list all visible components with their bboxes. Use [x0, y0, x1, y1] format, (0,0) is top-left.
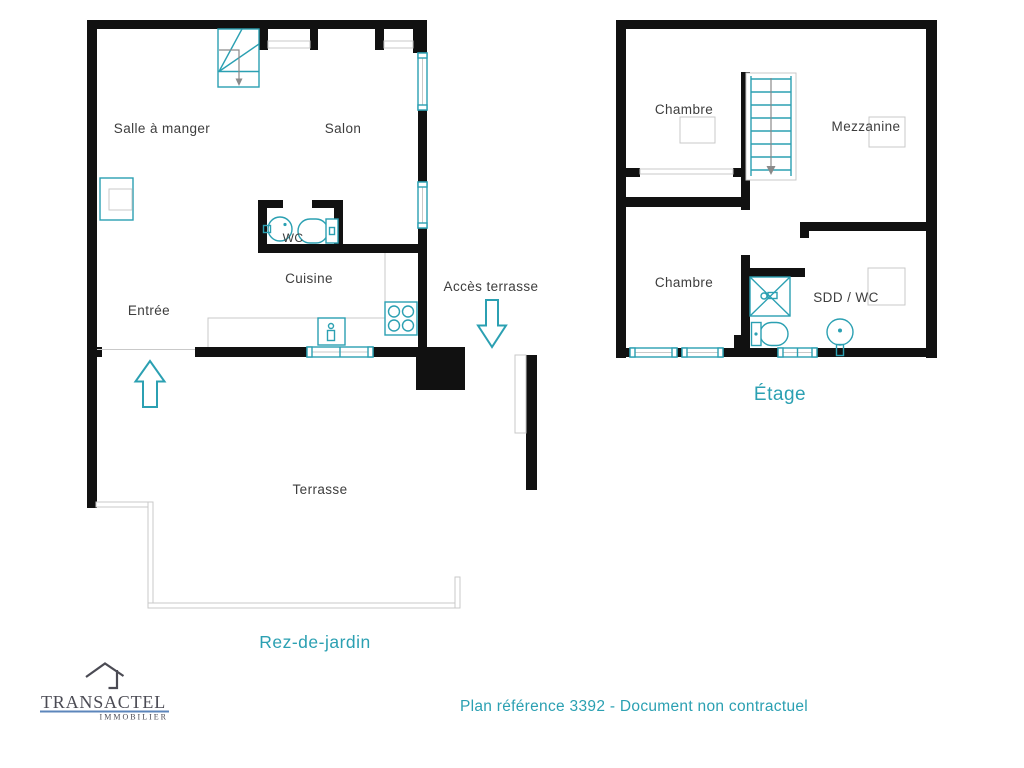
wall-opening-jamb — [626, 168, 640, 177]
terrace-edge — [455, 577, 460, 608]
room-label-kitchen: Cuisine — [285, 271, 333, 286]
agency-logo: TRANSACTEL IMMOBILIER — [40, 664, 169, 722]
logo-company-name: TRANSACTEL — [41, 692, 166, 712]
staircase-ground — [218, 29, 259, 87]
room-label-living: Salon — [325, 121, 362, 136]
terrace-edge — [148, 603, 457, 608]
wall-sdd-top — [800, 222, 926, 231]
terrace-access-arrow-icon — [478, 300, 506, 347]
opening-sill — [640, 169, 733, 174]
wall-right — [418, 110, 427, 182]
window-bedroom-2 — [682, 348, 723, 357]
window-kitchen — [307, 347, 373, 357]
window-cap — [368, 347, 373, 357]
window-sdd — [778, 348, 817, 357]
window-sill — [268, 41, 310, 48]
room-label-wc: WC — [283, 231, 304, 245]
toilet-tank-icon — [326, 219, 338, 243]
wall-kitchen-divider — [258, 244, 427, 253]
wall-window-jamb — [375, 29, 384, 50]
sink-tap — [329, 324, 334, 329]
fireplace-hatch — [100, 178, 133, 220]
room-label-bedroom-bottom: Chambre — [655, 275, 713, 290]
window-bedroom-1 — [630, 348, 677, 357]
wall-pillar — [416, 347, 465, 390]
wall-top — [616, 20, 937, 29]
bathroom-fixtures — [750, 277, 853, 356]
wall-right — [926, 20, 937, 358]
entry-arrow-icon — [136, 361, 165, 407]
logo-tagline: IMMOBILIER — [100, 713, 168, 722]
terrace-edge — [96, 502, 150, 507]
wc-wall-top — [258, 200, 283, 208]
wall-corner — [413, 29, 427, 53]
wall-shower-top — [741, 268, 805, 277]
terrace-edge — [515, 355, 526, 433]
washbasin-drain — [283, 223, 286, 226]
wall-top — [87, 20, 427, 29]
floor-plan-page: Salle à manger Salon WC Cuisine Entrée A… — [0, 0, 1024, 768]
washbasin-drain — [838, 329, 842, 333]
window-sill — [384, 41, 413, 48]
room-label-bedroom-top: Chambre — [655, 102, 713, 117]
roof-window — [680, 117, 715, 143]
wall-entry-jamb — [87, 347, 102, 357]
wall-window-jamb — [310, 29, 318, 50]
room-label-shower-wc: SDD / WC — [813, 290, 878, 305]
window-cap — [778, 348, 783, 357]
room-label-terrace: Terrasse — [293, 482, 348, 497]
fireplace — [100, 178, 133, 220]
toilet-bowl-icon — [760, 323, 788, 346]
wall-bedroom-divider — [616, 197, 750, 207]
window-right-2 — [418, 182, 427, 228]
wall-terrace-side — [526, 355, 537, 490]
wall-opening-jamb — [733, 168, 742, 177]
room-label-entry: Entrée — [128, 303, 170, 318]
ground-floor-plan: Salle à manger Salon WC Cuisine Entrée A… — [87, 20, 538, 652]
window-cap — [630, 348, 635, 357]
window-cap — [718, 348, 723, 357]
floor-label-upper: Étage — [754, 384, 806, 405]
window-cap — [418, 223, 427, 228]
window-cap — [418, 53, 427, 58]
kitchen-fittings — [208, 253, 417, 347]
wall-door-jamb — [800, 229, 809, 238]
room-label-mezzanine: Mezzanine — [832, 119, 901, 134]
wall-foot — [734, 335, 750, 348]
upper-floor-plan: Chambre Mezzanine Chambre SDD / WC Étage — [616, 20, 937, 405]
toilet-button — [754, 332, 757, 335]
house-icon — [109, 670, 118, 688]
floor-plan-drawing: Salle à manger Salon WC Cuisine Entrée A… — [0, 0, 1024, 768]
floor-label-ground: Rez-de-jardin — [259, 632, 371, 652]
counter-outline — [208, 253, 385, 347]
wall-window-jamb — [259, 29, 268, 50]
window-cap — [682, 348, 687, 357]
window-cap — [672, 348, 677, 357]
room-label-dining: Salle à manger — [114, 121, 211, 136]
room-label-terrace-access: Accès terrasse — [444, 279, 539, 294]
wall-left — [87, 20, 97, 508]
plan-reference-text: Plan référence 3392 - Document non contr… — [460, 698, 808, 715]
window-cap — [307, 347, 312, 357]
wall-left — [616, 20, 626, 358]
staircase-upper — [746, 73, 796, 180]
window-cap — [418, 105, 427, 110]
window-right-1 — [418, 53, 427, 110]
window-cap — [812, 348, 817, 357]
terrace-edge — [148, 502, 153, 608]
sink-basin — [328, 331, 335, 341]
window-cap — [418, 182, 427, 187]
fireplace-inner — [109, 189, 132, 210]
